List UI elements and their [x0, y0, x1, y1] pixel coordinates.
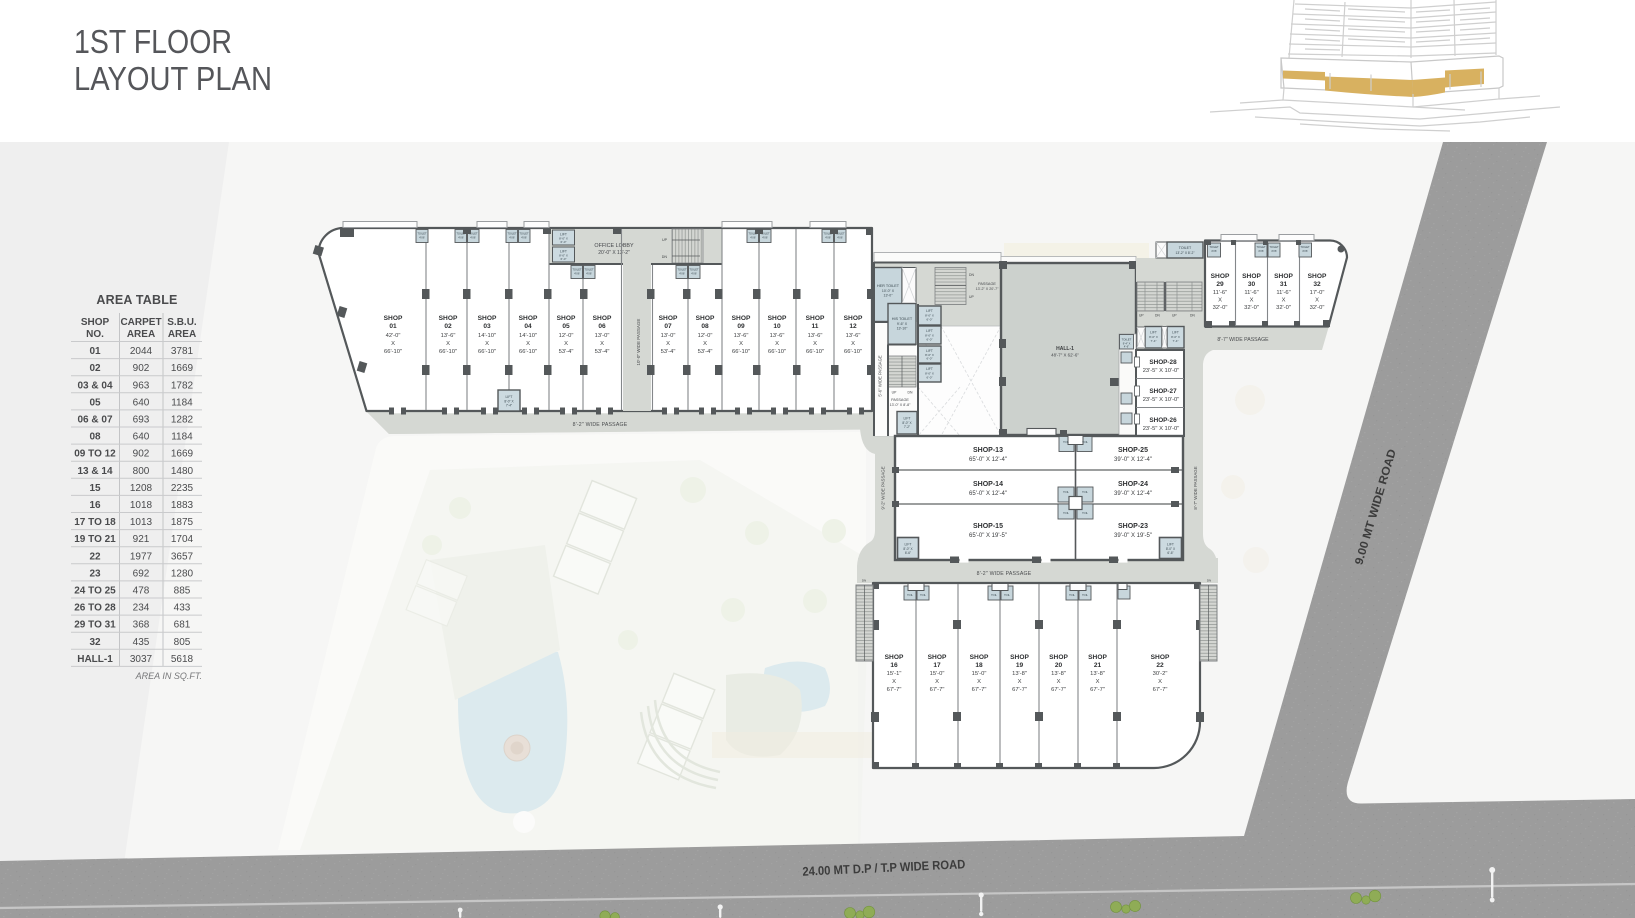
svg-text:11'-6": 11'-6"	[1276, 290, 1290, 296]
svg-text:X: X	[526, 341, 530, 347]
svg-text:05: 05	[562, 323, 570, 330]
svg-text:14'-10": 14'-10"	[519, 333, 537, 339]
svg-text:LIFT: LIFT	[926, 309, 933, 313]
svg-text:32'-0": 32'-0"	[1276, 305, 1291, 311]
svg-text:435: 435	[133, 637, 150, 648]
svg-text:4'X6': 4'X6'	[691, 272, 697, 276]
svg-text:13'-8": 13'-8"	[1090, 671, 1105, 677]
svg-text:TOIL: TOIL	[991, 593, 997, 597]
svg-text:DN: DN	[862, 579, 866, 583]
svg-text:67'-7": 67'-7"	[930, 687, 945, 693]
svg-text:TOIL: TOIL	[1082, 440, 1088, 444]
svg-text:X: X	[1315, 298, 1319, 304]
svg-text:TOIL: TOIL	[920, 593, 926, 597]
svg-text:66'-10": 66'-10"	[844, 349, 862, 355]
svg-text:13'-2" X 20'-7": 13'-2" X 20'-7"	[976, 287, 999, 291]
svg-text:67'-7": 67'-7"	[887, 687, 902, 693]
svg-text:LIFT: LIFT	[1167, 543, 1174, 547]
svg-text:11'-6": 11'-6"	[1213, 290, 1227, 296]
svg-text:1013: 1013	[130, 517, 153, 528]
svg-text:1184: 1184	[171, 397, 193, 408]
svg-text:NO.: NO.	[86, 329, 104, 340]
svg-text:4'X6': 4'X6'	[679, 272, 685, 276]
svg-text:CARPET: CARPET	[120, 317, 161, 328]
svg-text:20'-0" X 13'-2": 20'-0" X 13'-2"	[598, 250, 630, 256]
svg-text:13'-6": 13'-6"	[770, 333, 785, 339]
svg-text:1669: 1669	[171, 449, 194, 460]
svg-text:03 & 04: 03 & 04	[77, 380, 112, 391]
svg-text:15'-1": 15'-1"	[887, 671, 902, 677]
svg-text:11: 11	[812, 323, 819, 330]
svg-text:X: X	[1282, 298, 1286, 304]
svg-text:32: 32	[89, 637, 101, 648]
svg-text:902: 902	[133, 449, 150, 460]
svg-text:6'-0": 6'-0"	[927, 318, 933, 322]
svg-text:TOILET: TOILET	[689, 268, 699, 272]
svg-text:LIFT: LIFT	[506, 395, 513, 399]
svg-text:31: 31	[1280, 281, 1288, 288]
svg-text:13'-6": 13'-6"	[441, 333, 456, 339]
svg-text:1184: 1184	[171, 432, 193, 443]
svg-text:X: X	[851, 341, 855, 347]
svg-text:433: 433	[174, 603, 191, 614]
svg-text:4'X6': 4'X6'	[509, 236, 515, 240]
svg-text:AREA TABLE: AREA TABLE	[96, 293, 177, 307]
svg-text:6'-0": 6'-0"	[561, 240, 567, 244]
svg-text:29 TO 31: 29 TO 31	[74, 620, 116, 631]
svg-text:4'-6": 4'-6"	[1124, 345, 1129, 349]
svg-text:SHOP-26: SHOP-26	[1149, 417, 1177, 424]
svg-text:13'-6": 13'-6"	[808, 333, 823, 339]
svg-text:6'-0": 6'-0"	[927, 376, 933, 380]
svg-text:17 TO 18: 17 TO 18	[74, 517, 116, 528]
svg-text:TOIL: TOIL	[1082, 511, 1088, 515]
svg-text:66'-10": 66'-10"	[732, 349, 750, 355]
svg-text:1208: 1208	[130, 483, 153, 494]
svg-text:1704: 1704	[171, 534, 194, 545]
svg-text:20: 20	[1055, 662, 1063, 669]
svg-text:6'-0": 6'-0"	[927, 338, 933, 342]
svg-text:TOILET: TOILET	[507, 232, 517, 236]
svg-text:SHOP: SHOP	[659, 315, 678, 322]
svg-text:13'-0": 13'-0"	[661, 333, 676, 339]
svg-text:681: 681	[174, 620, 191, 631]
svg-text:42'-0": 42'-0"	[386, 333, 401, 339]
svg-text:4'X6': 4'X6'	[419, 236, 425, 240]
svg-text:SHOP-24: SHOP-24	[1118, 481, 1148, 488]
svg-text:X: X	[739, 341, 743, 347]
svg-text:5'-6" WIDE PASSAGE: 5'-6" WIDE PASSAGE	[878, 355, 883, 397]
svg-text:1282: 1282	[171, 415, 194, 426]
svg-text:67'-7": 67'-7"	[972, 687, 987, 693]
svg-text:11'-6": 11'-6"	[1244, 290, 1258, 296]
svg-text:4'X6': 4'X6'	[837, 236, 843, 240]
svg-text:TOILET: TOILET	[519, 232, 529, 236]
svg-text:SHOP: SHOP	[1088, 654, 1107, 661]
svg-text:53'-4": 53'-4"	[698, 349, 713, 355]
svg-text:10: 10	[773, 323, 781, 330]
svg-text:8'-7" WIDE PASSAGE: 8'-7" WIDE PASSAGE	[1217, 337, 1269, 343]
svg-text:4'X6': 4'X6'	[825, 236, 831, 240]
svg-text:TOILET: TOILET	[1122, 338, 1132, 342]
svg-text:805: 805	[174, 637, 191, 648]
svg-text:SHOP: SHOP	[384, 315, 403, 322]
svg-text:13'-0": 13'-0"	[595, 333, 610, 339]
svg-text:DN: DN	[1207, 579, 1211, 583]
svg-text:X: X	[703, 341, 707, 347]
svg-text:3781: 3781	[171, 346, 194, 357]
svg-text:22: 22	[1156, 662, 1164, 669]
svg-text:X: X	[977, 679, 981, 685]
svg-text:TOILET: TOILET	[1269, 245, 1279, 249]
svg-text:SHOP: SHOP	[885, 654, 904, 661]
svg-text:26 TO 28: 26 TO 28	[74, 603, 116, 614]
svg-text:12'-0": 12'-0"	[698, 333, 713, 339]
svg-text:SHOP: SHOP	[1010, 654, 1029, 661]
svg-text:LIFT: LIFT	[1172, 331, 1179, 335]
svg-text:2044: 2044	[130, 346, 153, 357]
svg-text:6'-6": 6'-6"	[905, 551, 911, 555]
svg-text:HALL-1: HALL-1	[77, 654, 113, 665]
svg-text:4'X6': 4'X6'	[574, 272, 580, 276]
svg-text:21: 21	[1094, 662, 1102, 669]
svg-text:X: X	[1250, 298, 1254, 304]
svg-text:640: 640	[133, 397, 150, 408]
svg-text:16: 16	[89, 500, 101, 511]
svg-text:SHOP-14: SHOP-14	[973, 481, 1003, 488]
svg-text:3657: 3657	[171, 551, 194, 562]
svg-text:08: 08	[89, 432, 101, 443]
svg-text:7'-4": 7'-4"	[506, 404, 512, 408]
svg-text:LIFT: LIFT	[1150, 331, 1157, 335]
svg-text:22: 22	[89, 551, 101, 562]
svg-text:13'-0" X 8'-8": 13'-0" X 8'-8"	[890, 403, 911, 407]
svg-text:TOILET: TOILET	[677, 268, 687, 272]
svg-text:48'-7" X 62'-6": 48'-7" X 62'-6"	[1051, 353, 1079, 358]
svg-text:17: 17	[933, 662, 941, 669]
svg-text:TOILET: TOILET	[1179, 246, 1192, 250]
svg-text:19 TO 21: 19 TO 21	[74, 534, 116, 545]
svg-text:4'X6': 4'X6'	[1211, 249, 1217, 253]
svg-text:6'-0": 6'-0"	[927, 357, 933, 361]
svg-text:SHOP-15: SHOP-15	[973, 523, 1003, 530]
svg-text:SHOP: SHOP	[732, 315, 751, 322]
svg-text:TOILET: TOILET	[572, 268, 582, 272]
svg-text:66'-10": 66'-10"	[439, 349, 457, 355]
svg-text:SHOP: SHOP	[696, 315, 715, 322]
svg-text:4'X6': 4'X6'	[1258, 249, 1264, 253]
svg-text:UP: UP	[892, 391, 897, 395]
svg-text:65'-0" X 19'-5": 65'-0" X 19'-5"	[969, 533, 1007, 539]
svg-text:X: X	[775, 341, 779, 347]
svg-text:13'-8": 13'-8"	[1051, 671, 1066, 677]
svg-text:53'-4": 53'-4"	[595, 349, 610, 355]
svg-text:66'-10": 66'-10"	[519, 349, 537, 355]
svg-text:800: 800	[133, 466, 150, 477]
svg-text:3037: 3037	[130, 654, 153, 665]
svg-text:X: X	[485, 341, 489, 347]
svg-text:18: 18	[975, 662, 983, 669]
svg-text:963: 963	[133, 380, 150, 391]
svg-text:TOIL: TOIL	[1063, 440, 1069, 444]
svg-text:19: 19	[1016, 662, 1024, 669]
svg-text:53'-4": 53'-4"	[559, 349, 574, 355]
svg-text:OFFICE LOBBY: OFFICE LOBBY	[594, 243, 634, 249]
svg-text:SHOP: SHOP	[1211, 273, 1230, 280]
svg-text:X: X	[600, 341, 604, 347]
svg-text:TOILET: TOILET	[1209, 245, 1219, 249]
svg-text:SHOP: SHOP	[1274, 273, 1293, 280]
svg-text:14'-10": 14'-10"	[478, 333, 496, 339]
svg-text:24 TO 25: 24 TO 25	[74, 586, 116, 597]
svg-text:LIFT: LIFT	[905, 543, 912, 547]
svg-text:4'X6': 4'X6'	[521, 236, 527, 240]
svg-text:39'-0" X 19'-5": 39'-0" X 19'-5"	[1114, 533, 1152, 539]
svg-text:TOIL: TOIL	[1069, 593, 1075, 597]
svg-text:6'-6": 6'-6"	[1167, 551, 1173, 555]
svg-text:8'-2" WIDE PASSAGE: 8'-2" WIDE PASSAGE	[573, 422, 628, 428]
svg-text:13'-6": 13'-6"	[846, 333, 861, 339]
svg-text:4'X6': 4'X6'	[762, 236, 768, 240]
svg-text:32'-0": 32'-0"	[1310, 305, 1325, 311]
svg-text:53'-4": 53'-4"	[661, 349, 676, 355]
svg-text:1669: 1669	[171, 363, 194, 374]
svg-text:X: X	[892, 679, 896, 685]
svg-text:66'-10": 66'-10"	[806, 349, 824, 355]
svg-text:UP: UP	[1172, 314, 1177, 318]
svg-text:67'-7": 67'-7"	[1090, 687, 1105, 693]
svg-text:DN: DN	[662, 255, 668, 259]
svg-text:65'-0" X 12'-4": 65'-0" X 12'-4"	[969, 457, 1007, 463]
svg-text:SHOP: SHOP	[478, 315, 497, 322]
svg-text:67'-7": 67'-7"	[1153, 687, 1168, 693]
svg-text:05: 05	[89, 397, 101, 408]
svg-text:12'-0": 12'-0"	[559, 333, 574, 339]
svg-text:4'X6': 4'X6'	[750, 236, 756, 240]
svg-text:SHOP-28: SHOP-28	[1149, 359, 1177, 366]
svg-text:1280: 1280	[171, 568, 194, 579]
svg-text:SHOP: SHOP	[439, 315, 458, 322]
svg-text:478: 478	[133, 586, 150, 597]
svg-text:4'X6': 4'X6'	[1302, 249, 1308, 253]
svg-text:LIFT: LIFT	[904, 417, 911, 421]
svg-text:HALL-1: HALL-1	[1056, 346, 1074, 352]
svg-text:LAYOUT PLAN: LAYOUT PLAN	[74, 60, 272, 97]
svg-text:TOILET: TOILET	[1256, 245, 1266, 249]
svg-text:SHOP: SHOP	[1151, 654, 1170, 661]
svg-text:13'-8": 13'-8"	[1012, 671, 1027, 677]
svg-text:23'-5" X 10'-0": 23'-5" X 10'-0"	[1143, 426, 1180, 432]
svg-text:23'-5" X 10'-0": 23'-5" X 10'-0"	[1143, 368, 1180, 374]
svg-text:09: 09	[737, 323, 745, 330]
svg-text:692: 692	[133, 568, 150, 579]
svg-text:66'-10": 66'-10"	[478, 349, 496, 355]
svg-text:07: 07	[664, 323, 672, 330]
svg-text:10'-0" X: 10'-0" X	[882, 289, 895, 293]
svg-text:15: 15	[89, 483, 101, 494]
svg-text:30'-2": 30'-2"	[1153, 671, 1168, 677]
svg-text:15'-0": 15'-0"	[930, 671, 945, 677]
svg-text:4'X6': 4'X6'	[586, 272, 592, 276]
svg-text:1ST FLOOR: 1ST FLOOR	[74, 23, 232, 60]
svg-text:03: 03	[483, 323, 491, 330]
svg-text:TOIL: TOIL	[907, 593, 913, 597]
svg-text:06 & 07: 06 & 07	[77, 415, 112, 426]
svg-text:HIS TOILET: HIS TOILET	[892, 317, 913, 321]
svg-text:TOIL: TOIL	[1063, 490, 1069, 494]
svg-text:DN: DN	[1155, 314, 1160, 318]
svg-text:1875: 1875	[171, 517, 194, 528]
svg-text:12: 12	[849, 323, 857, 330]
svg-text:32: 32	[1313, 281, 1321, 288]
svg-text:368: 368	[133, 620, 150, 631]
svg-text:SHOP-13: SHOP-13	[973, 447, 1003, 454]
svg-text:4'X6': 4'X6'	[1271, 249, 1277, 253]
svg-text:1883: 1883	[171, 500, 194, 511]
svg-text:SHOP: SHOP	[806, 315, 825, 322]
svg-text:X: X	[1018, 679, 1022, 685]
svg-text:PASSAGE: PASSAGE	[978, 282, 996, 286]
svg-text:67'-7": 67'-7"	[1012, 687, 1027, 693]
svg-text:902: 902	[133, 363, 150, 374]
svg-text:885: 885	[174, 586, 191, 597]
svg-text:32'-0": 32'-0"	[1213, 305, 1228, 311]
svg-text:X: X	[935, 679, 939, 685]
svg-text:X: X	[1057, 679, 1061, 685]
svg-text:29: 29	[1216, 281, 1224, 288]
svg-text:TOIL: TOIL	[1082, 593, 1088, 597]
svg-text:AREA IN SQ.FT.: AREA IN SQ.FT.	[135, 671, 202, 681]
svg-text:8'-7" WIDE PASSAGE: 8'-7" WIDE PASSAGE	[1193, 466, 1198, 509]
svg-text:9'-2" WIDE PASSAGE: 9'-2" WIDE PASSAGE	[881, 466, 886, 509]
svg-text:X: X	[813, 341, 817, 347]
svg-text:SHOP: SHOP	[970, 654, 989, 661]
svg-text:X: X	[1158, 679, 1162, 685]
svg-text:TOILET: TOILET	[1300, 245, 1310, 249]
svg-text:66'-10": 66'-10"	[768, 349, 786, 355]
svg-text:X: X	[564, 341, 568, 347]
svg-text:13'-0": 13'-0"	[884, 294, 894, 298]
svg-text:2235: 2235	[171, 483, 194, 494]
svg-text:X: X	[1218, 298, 1222, 304]
svg-text:7'-4": 7'-4"	[1173, 339, 1179, 343]
svg-text:S.B.U.: S.B.U.	[167, 317, 197, 328]
svg-text:AREA: AREA	[168, 329, 196, 340]
svg-text:LIFT: LIFT	[926, 367, 933, 371]
svg-text:13'-2" X 8'-2": 13'-2" X 8'-2"	[1176, 251, 1196, 255]
svg-text:01: 01	[389, 323, 397, 330]
svg-text:16: 16	[890, 662, 898, 669]
svg-text:39'-0" X 12'-4": 39'-0" X 12'-4"	[1114, 491, 1152, 497]
svg-text:1977: 1977	[130, 551, 153, 562]
svg-text:8'-2" WIDE PASSAGE: 8'-2" WIDE PASSAGE	[977, 571, 1032, 577]
svg-text:TOIL: TOIL	[1082, 490, 1088, 494]
svg-text:1480: 1480	[171, 466, 194, 477]
svg-text:693: 693	[133, 415, 150, 426]
svg-text:640: 640	[133, 432, 150, 443]
svg-text:X: X	[446, 341, 450, 347]
svg-text:09 TO 12: 09 TO 12	[74, 449, 116, 460]
svg-text:234: 234	[133, 603, 150, 614]
svg-text:4'X6': 4'X6'	[458, 236, 464, 240]
svg-text:SHOP: SHOP	[844, 315, 863, 322]
svg-text:SHOP-23: SHOP-23	[1118, 523, 1148, 530]
svg-text:SHOP: SHOP	[593, 315, 612, 322]
svg-text:65'-0" X 12'-4": 65'-0" X 12'-4"	[969, 491, 1007, 497]
svg-text:1782: 1782	[171, 380, 194, 391]
svg-text:SHOP: SHOP	[519, 315, 538, 322]
svg-text:9'-6" X: 9'-6" X	[897, 322, 908, 326]
svg-text:921: 921	[133, 534, 150, 545]
svg-text:23'-5" X 10'-0": 23'-5" X 10'-0"	[1143, 397, 1180, 403]
svg-text:TOIL: TOIL	[1004, 593, 1010, 597]
svg-text:06: 06	[598, 323, 606, 330]
svg-text:10'-0" WIDE PASSAGE: 10'-0" WIDE PASSAGE	[636, 319, 641, 366]
svg-text:X: X	[391, 341, 395, 347]
svg-text:SHOP: SHOP	[81, 317, 110, 328]
svg-text:UP: UP	[969, 295, 974, 299]
svg-text:X: X	[1096, 679, 1100, 685]
svg-text:5618: 5618	[171, 654, 194, 665]
svg-text:SHOP-25: SHOP-25	[1118, 447, 1148, 454]
svg-text:02: 02	[89, 363, 101, 374]
svg-text:01: 01	[89, 346, 101, 357]
svg-text:67'-7": 67'-7"	[1051, 687, 1066, 693]
svg-text:TOILET: TOILET	[584, 268, 594, 272]
svg-text:LIFT: LIFT	[926, 329, 933, 333]
svg-text:SHOP: SHOP	[768, 315, 787, 322]
svg-text:SHOP: SHOP	[1242, 273, 1261, 280]
svg-text:39'-0" X 12'-4": 39'-0" X 12'-4"	[1114, 457, 1152, 463]
svg-text:SHOP: SHOP	[928, 654, 947, 661]
svg-text:DN: DN	[908, 391, 913, 395]
svg-text:X: X	[666, 341, 670, 347]
svg-text:32'-0": 32'-0"	[1244, 305, 1259, 311]
svg-text:SHOP: SHOP	[1308, 273, 1327, 280]
svg-text:PASSAGE: PASSAGE	[891, 398, 909, 402]
svg-text:13'-10": 13'-10"	[897, 327, 909, 331]
svg-text:UP: UP	[1139, 314, 1144, 318]
svg-text:4'X6': 4'X6'	[470, 236, 476, 240]
svg-text:08: 08	[701, 323, 709, 330]
svg-text:DN: DN	[1190, 314, 1195, 318]
svg-text:66'-10": 66'-10"	[384, 349, 402, 355]
svg-text:13 & 14: 13 & 14	[77, 466, 112, 477]
svg-text:15'-0": 15'-0"	[972, 671, 987, 677]
svg-text:DN: DN	[969, 273, 974, 277]
svg-text:04: 04	[524, 323, 532, 330]
svg-text:23: 23	[89, 568, 101, 579]
svg-text:30: 30	[1248, 281, 1256, 288]
svg-text:SHOP-27: SHOP-27	[1149, 388, 1177, 395]
svg-text:TOIL: TOIL	[1063, 511, 1069, 515]
svg-text:SHOP: SHOP	[1049, 654, 1068, 661]
svg-text:7'-4": 7'-4"	[1151, 339, 1157, 343]
svg-text:TOILET: TOILET	[417, 232, 427, 236]
svg-text:17'-0": 17'-0"	[1310, 290, 1325, 296]
svg-text:SHOP: SHOP	[557, 315, 576, 322]
svg-text:1018: 1018	[130, 500, 153, 511]
svg-text:HER TOILET: HER TOILET	[877, 284, 900, 288]
svg-text:7'-2": 7'-2"	[904, 425, 910, 429]
svg-text:UP: UP	[662, 238, 668, 242]
svg-text:13'-6": 13'-6"	[734, 333, 749, 339]
svg-text:02: 02	[444, 323, 452, 330]
svg-text:AREA: AREA	[127, 329, 155, 340]
svg-text:6'-0": 6'-0"	[561, 257, 567, 261]
